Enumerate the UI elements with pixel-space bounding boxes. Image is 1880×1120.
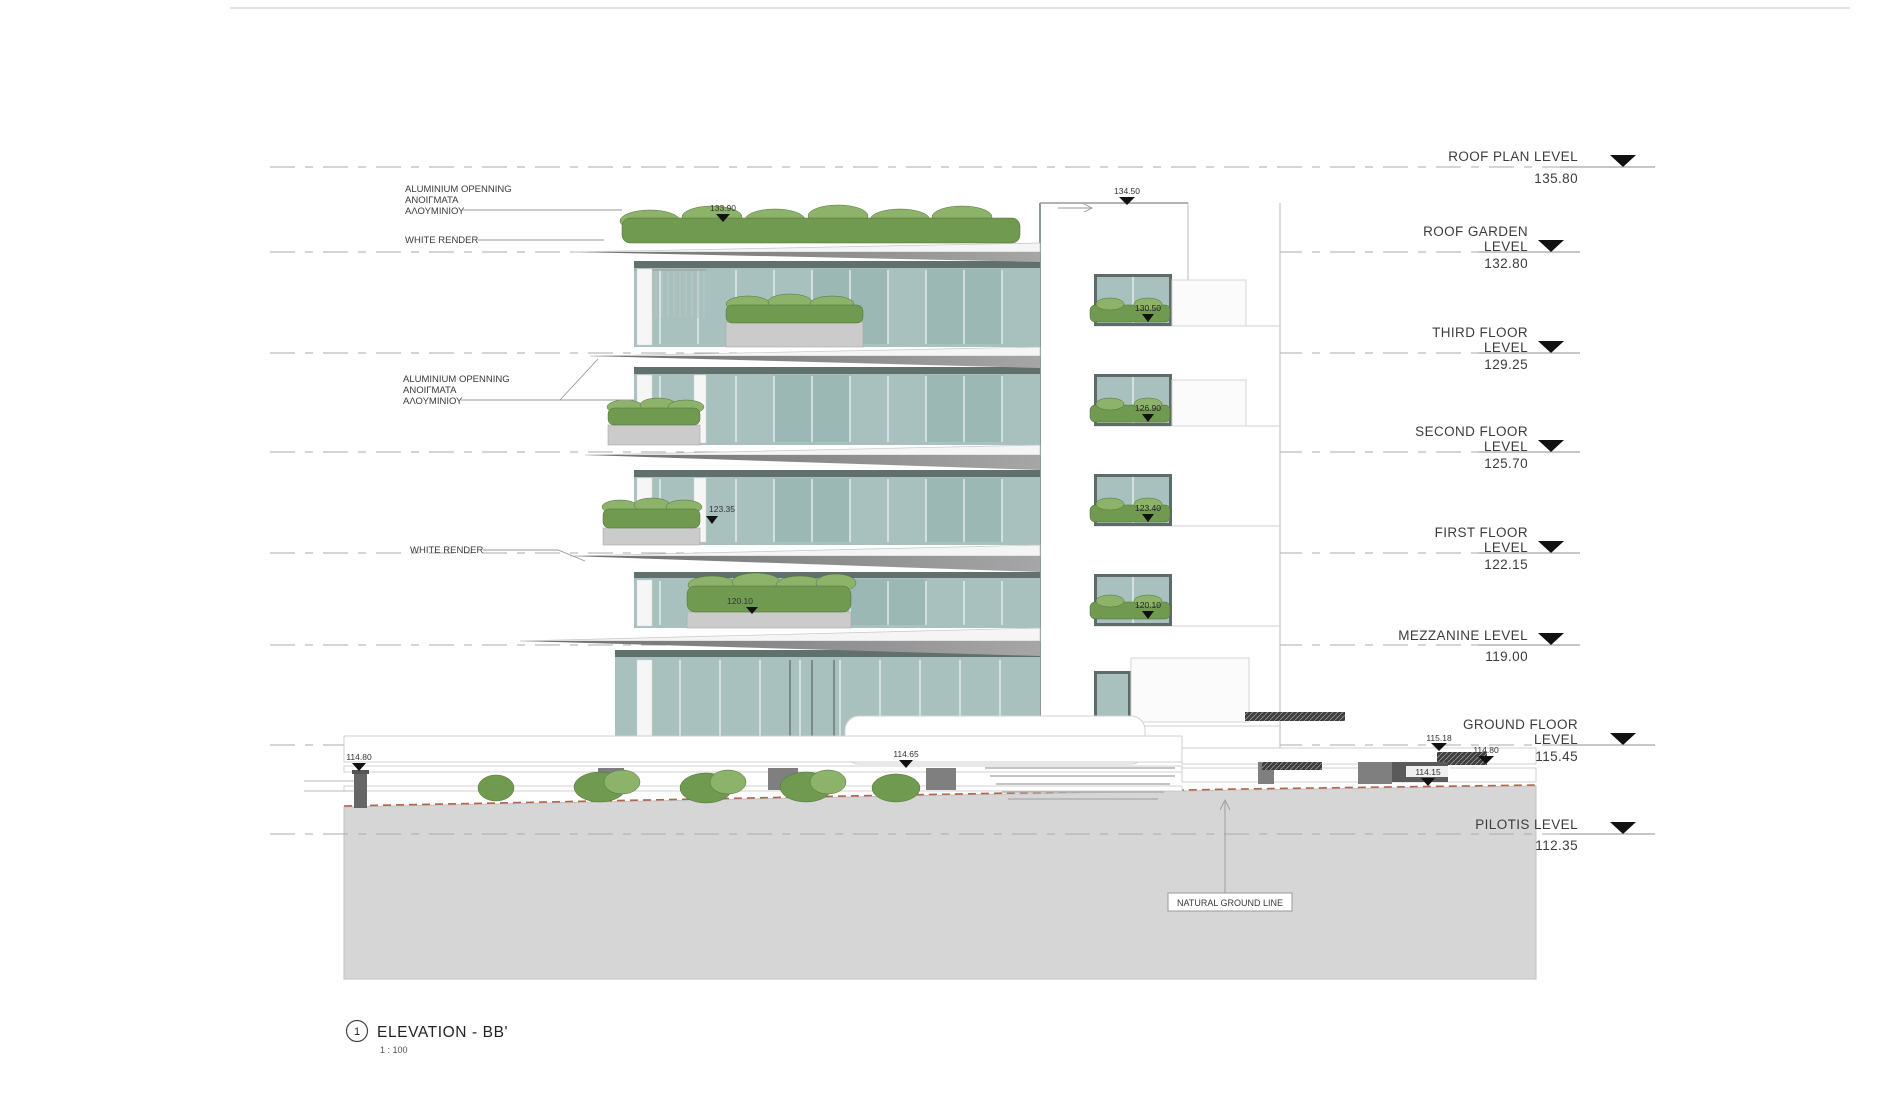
svg-text:WHITE RENDER: WHITE RENDER	[410, 545, 484, 556]
level-marker-icon	[1538, 341, 1564, 353]
level-second-floor: SECOND FLOOR LEVEL 125.70	[1415, 424, 1580, 471]
level-value: 112.35	[1535, 838, 1578, 853]
spot-entry-right: 114.80	[1473, 745, 1499, 755]
spot-roof-left: 133.90	[710, 203, 736, 213]
level-name: THIRD FLOOR	[1432, 325, 1528, 340]
elevation-canvas: 133.90 134.50 123.35 120.10 130.50 126.9…	[0, 0, 1880, 1120]
spot-entry-upper: 115.18	[1426, 733, 1452, 743]
svg-text:ΑΛΟΥΜΙΝΙΟΥ: ΑΛΟΥΜΙΝΙΟΥ	[403, 396, 463, 407]
level-name: GROUND FLOOR	[1463, 717, 1578, 732]
svg-text:ALUMINIUM OPENNING: ALUMINIUM OPENNING	[403, 374, 510, 385]
spot-terrace: 114.65	[893, 749, 919, 759]
level-value: 135.80	[1534, 171, 1578, 186]
level-roof-garden: ROOF GARDEN LEVEL 132.80	[1423, 224, 1580, 271]
level-name: FIRST FLOOR	[1435, 525, 1528, 540]
note-aluminium-opening-mid: ALUMINIUM OPENNING ΑΝΟΙΓΜΑΤΑ ΑΛΟΥΜΙΝΙΟΥ	[403, 359, 634, 407]
level-value: 132.80	[1484, 256, 1528, 271]
level-value: 119.00	[1485, 649, 1528, 664]
spot-wing-second: 126.90	[1135, 403, 1161, 413]
svg-text:ΑΝΟΙΓΜΑΤΑ: ΑΝΟΙΓΜΑΤΑ	[405, 195, 459, 206]
level-marker-icon	[1538, 541, 1564, 553]
level-marker-icon	[1538, 440, 1564, 452]
hatched-wall-cap	[1245, 712, 1345, 721]
fence-post	[354, 772, 367, 808]
level-marker-icon	[1610, 822, 1636, 834]
roof-hedge	[620, 205, 1020, 243]
level-name: ROOF GARDEN	[1423, 224, 1528, 239]
level-mezzanine: MEZZANINE LEVEL 119.00	[1398, 628, 1580, 664]
level-value: 122.15	[1484, 557, 1528, 572]
level-name: SECOND FLOOR	[1415, 424, 1528, 439]
spot-site-left: 114.80	[346, 752, 372, 762]
level-name: ROOF PLAN LEVEL	[1448, 149, 1578, 164]
level-value: 115.45	[1535, 749, 1578, 764]
view-title-text: ELEVATION - BB'	[377, 1024, 508, 1041]
boundary-wall	[344, 736, 1182, 762]
note-white-render-top: WHITE RENDER	[405, 235, 604, 246]
svg-text:WHITE RENDER: WHITE RENDER	[405, 235, 479, 246]
spot-wing-mezzanine: 120.10	[1135, 600, 1161, 610]
spot-roof-right: 134.50	[1114, 186, 1140, 196]
svg-text:ALUMINIUM OPENNING: ALUMINIUM OPENNING	[405, 184, 512, 195]
level-first-floor: FIRST FLOOR LEVEL 122.15	[1435, 525, 1580, 572]
view-scale: 1 : 100	[380, 1045, 408, 1055]
building-elevation	[520, 203, 1280, 758]
elevation-drawing-sheet: 133.90 134.50 123.35 120.10 130.50 126.9…	[0, 0, 1880, 1120]
level-name: MEZZANINE LEVEL	[1398, 628, 1528, 643]
spot-wing-third: 130.50	[1135, 303, 1161, 313]
level-name: PILOTIS LEVEL	[1475, 817, 1578, 832]
view-title: 1 ELEVATION - BB' 1 : 100	[347, 1021, 509, 1056]
detail-number: 1	[354, 1026, 360, 1038]
spot-balcony-first: 123.35	[709, 504, 735, 514]
spot-balcony-mezzanine: 120.10	[727, 596, 753, 606]
level-marker-icon	[1538, 240, 1564, 252]
level-value: 125.70	[1484, 456, 1528, 471]
svg-text:ΑΝΟΙΓΜΑΤΑ: ΑΝΟΙΓΜΑΤΑ	[403, 385, 457, 396]
svg-text:NATURAL GROUND LINE: NATURAL GROUND LINE	[1177, 898, 1283, 908]
level-value: 129.25	[1484, 357, 1528, 372]
spot-wing-first: 123.40	[1135, 503, 1161, 513]
level-third-floor: THIRD FLOOR LEVEL 129.25	[1432, 325, 1580, 372]
level-marker-icon	[1538, 633, 1564, 645]
entrance-white-panel	[1131, 658, 1249, 722]
svg-text:ΑΛΟΥΜΙΝΙΟΥ: ΑΛΟΥΜΙΝΙΟΥ	[405, 206, 465, 217]
note-aluminium-opening-top: ALUMINIUM OPENNING ΑΝΟΙΓΜΑΤΑ ΑΛΟΥΜΙΝΙΟΥ	[405, 184, 622, 217]
ground-mass	[344, 785, 1536, 979]
level-marker-icon	[1610, 155, 1636, 167]
level-marker-icon	[1610, 733, 1636, 745]
spot-driveway: 114.15	[1415, 767, 1441, 777]
